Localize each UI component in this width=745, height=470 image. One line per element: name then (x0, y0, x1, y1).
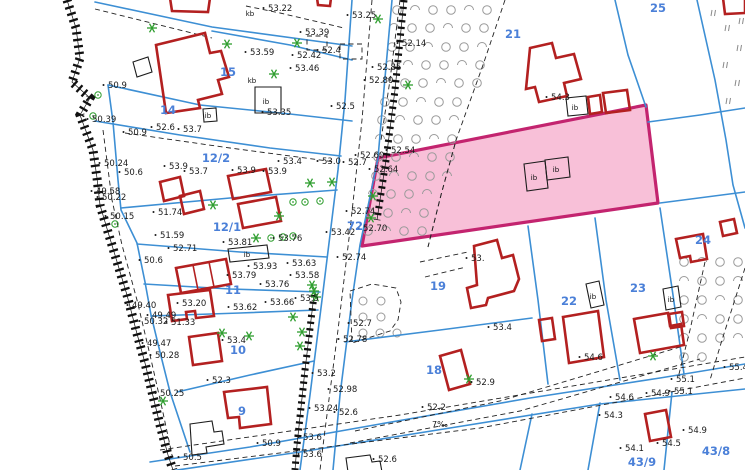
elevation-label: 52.2 (427, 403, 446, 413)
elevation-point (488, 326, 490, 328)
elevation-label: 51.74 (158, 208, 182, 218)
orchard-tree-icon (414, 116, 423, 125)
tree-circle-dot (304, 201, 306, 203)
elevation-label: 50.5 (183, 453, 202, 463)
parcel-number-label: 22 (561, 294, 577, 308)
elevation-point (317, 49, 319, 51)
elevation-label: 52.85 (377, 63, 401, 73)
elevation-label: 52.71 (173, 244, 197, 254)
elevation-point (151, 126, 153, 128)
elevation-label: 50.22 (102, 193, 126, 203)
elevation-label: 52.70 (363, 224, 387, 234)
elevation-label: 53.81 (228, 238, 252, 248)
elevation-label: 55.4 (729, 363, 745, 373)
elevation-point (207, 379, 209, 381)
orchard-tree-icon (429, 6, 438, 15)
orchard-tree-icon-arc (478, 43, 487, 48)
elevation-label: 54.1 (625, 444, 644, 454)
meadow-tick-icon (735, 80, 736, 86)
elevation-label: 50.9 (108, 81, 127, 91)
elevation-label: 55.1 (676, 375, 695, 385)
parcel-boundary (648, 108, 745, 122)
elevation-label: 53.20 (182, 299, 206, 309)
elevation-point (119, 171, 121, 173)
elevation-label: 52.3 (212, 376, 231, 386)
parcel-number-label: 12/2 (202, 151, 230, 165)
orchard-tree-icon (698, 334, 707, 343)
elevation-point (155, 392, 157, 394)
orchard-tree-icon-arc (458, 61, 467, 66)
elevation-point (346, 210, 348, 212)
orchard-tree-icon (377, 297, 385, 305)
elevation-label: 53.5 (300, 294, 319, 304)
orchard-tree-icon (442, 43, 451, 52)
elevation-point (228, 306, 230, 308)
elevation-label: 52.74 (342, 253, 366, 263)
elevation-label: 53.9 (268, 167, 287, 177)
orchard-tree-icon (447, 6, 456, 15)
orchard-tree-icon (426, 24, 435, 33)
elevation-point (331, 105, 333, 107)
orchard-tree-icon (716, 334, 725, 343)
outbuilding-outline (190, 421, 224, 455)
orchard-tree-icon (412, 135, 421, 144)
elevation-point (155, 234, 157, 236)
elevation-label: 53.66 (270, 298, 294, 308)
elevation-label: 53.4 (493, 323, 512, 333)
orchard-tree-icon (716, 277, 725, 286)
elevation-point (599, 414, 601, 416)
elevation-point (326, 231, 328, 233)
elevation-point (166, 321, 168, 323)
elevation-label: 54.6 (615, 393, 634, 403)
meadow-tick-icon (741, 45, 742, 51)
elevation-point (724, 366, 726, 368)
orchard-tree-icon-arc (417, 98, 426, 103)
elevation-point (97, 196, 99, 198)
elevation-point (263, 7, 265, 9)
parcel-boundary (528, 226, 548, 384)
tree-circle-dot (319, 200, 321, 202)
elevation-point (334, 411, 336, 413)
elevation-point (397, 42, 399, 44)
elevation-point (105, 215, 107, 217)
parcel-boundary (588, 403, 600, 470)
elevation-label: 52.64 (374, 165, 398, 175)
building-tag-label: ib (244, 251, 251, 259)
elevation-point (99, 162, 101, 164)
orchard-tree-icon (716, 315, 725, 324)
parcel-number-label: 15 (220, 65, 236, 79)
building-outline (238, 197, 281, 228)
building-tag-label: kb (246, 10, 255, 18)
parcel-boundary (108, 85, 352, 121)
orchard-tree-icon (399, 98, 408, 107)
elevation-point (232, 169, 234, 171)
elevation-label: 52.98 (333, 385, 357, 395)
elevation-point (87, 118, 89, 120)
elevation-label: 50.28 (155, 351, 179, 361)
elevation-label: 53.35 (267, 108, 291, 118)
elevation-point (177, 302, 179, 304)
cadastral-map-canvas[interactable]: 50.950.3950.952.653.753.5953.3553.2253.2… (0, 0, 745, 470)
building-outline (189, 333, 222, 365)
elevation-point (178, 456, 180, 458)
orchard-tree-icon-arc (465, 6, 474, 10)
elevation-label: 53.7 (183, 125, 202, 135)
elevation-label: 54.6 (584, 353, 603, 363)
elevation-point (263, 170, 265, 172)
elevation-label: 53.58 (295, 271, 319, 281)
elevation-point (337, 256, 339, 258)
parcel-boundary (95, 2, 352, 46)
orchard-tree-icon-arc (444, 24, 453, 29)
meadow-tick-icon (727, 62, 728, 68)
building-tag-label: ib (531, 174, 538, 182)
elevation-label: 52.80 (369, 76, 393, 86)
orchard-tree-icon (462, 24, 471, 33)
orchard-tree-icon-arc (430, 135, 439, 140)
elevation-point (372, 66, 374, 68)
elevation-label: 53.7 (189, 167, 208, 177)
orchard-tree-icon (408, 24, 417, 33)
parcel-number-label: 12/1 (213, 220, 241, 234)
elevation-label: 53.59 (250, 48, 274, 58)
elevation-point (312, 372, 314, 374)
elevation-point (290, 67, 292, 69)
elevation-label: 53.22 (268, 4, 292, 14)
elevation-label: 50.39 (92, 115, 116, 125)
elevation-label: 52.5 (336, 102, 355, 112)
elevation-label: 53.63 (292, 259, 316, 269)
elevation-label: 53.62 (233, 303, 257, 313)
elevation-point (178, 128, 180, 130)
elevation-point (123, 131, 125, 133)
tree-circle-dot (114, 223, 116, 225)
meadow-tick-icon (739, 18, 740, 24)
elevation-label: 51.59 (160, 231, 184, 241)
elevation-point (184, 170, 186, 172)
elevation-point (91, 190, 93, 192)
elevation-label: 52.6 (378, 455, 397, 465)
orchard-tree-icon-arc (396, 116, 405, 121)
building-tag-label: ib (572, 104, 579, 112)
building-division-line (209, 262, 214, 287)
elevation-label: 54.3 (551, 93, 570, 103)
usage-boundary-dashed (103, 130, 172, 455)
elevation-label: 53.39 (305, 28, 329, 38)
orchard-tree-icon (734, 296, 743, 305)
orchard-tree-icon (422, 61, 431, 70)
elevation-point (328, 388, 330, 390)
elevation-point (309, 407, 311, 409)
meadow-tick-icon (739, 80, 740, 86)
meadow-tick-icon (723, 62, 724, 68)
elevation-point (227, 274, 229, 276)
elevation-point (343, 161, 345, 163)
elevation-label: 49.47 (147, 339, 171, 349)
elevation-label: 52.7 (348, 158, 367, 168)
orchard-tree-icon-arc (404, 61, 413, 66)
parcel-number-label: 19 (430, 279, 446, 293)
elevation-label: 52.7 (353, 319, 372, 329)
usage-boundary-dashed (355, 347, 680, 431)
parcel-number-label: 9 (238, 404, 246, 418)
orchard-tree-icon (734, 258, 743, 267)
elevation-point (245, 51, 247, 53)
elevation-point (273, 237, 275, 239)
building-outline (317, 0, 331, 6)
elevation-label: 54.3 (604, 411, 623, 421)
elevation-point (223, 241, 225, 243)
elevation-point (278, 160, 280, 162)
elevation-label: 50.9 (262, 439, 281, 449)
elevation-label: 52.9 (476, 378, 495, 388)
elevation-point (292, 54, 294, 56)
parcel-number-label: 11 (225, 283, 241, 297)
elevation-point (386, 149, 388, 151)
elevation-label: 52.74 (351, 207, 375, 217)
parcel-boundary (520, 414, 532, 470)
elevation-point (222, 339, 224, 341)
meadow-tick-icon (726, 98, 727, 104)
elevation-point (298, 453, 300, 455)
orchard-tree-icon (453, 98, 462, 107)
orchard-tree-icon-arc (698, 315, 707, 319)
orchard-tree-icon (435, 98, 444, 107)
orchard-tree-icon-arc (680, 277, 689, 282)
elevation-label: 53.0 (322, 157, 341, 167)
building-outline (156, 33, 229, 113)
elevation-point (260, 283, 262, 285)
elevation-point (355, 154, 357, 156)
elevation-point (295, 297, 297, 299)
elevation-label: 53.2 (317, 369, 336, 379)
elevation-label: 53.25 (352, 11, 376, 21)
building-outline (170, 0, 210, 12)
elevation-label: 52.42 (297, 51, 321, 61)
parcel-number-label: 24 (695, 233, 711, 247)
usage-boundary-dashed (246, 6, 344, 28)
elevation-label: 53.93 (253, 262, 277, 272)
elevation-label: 54.9 (651, 389, 670, 399)
elevation-point (153, 211, 155, 213)
elevation-label: 53.6 (303, 450, 322, 460)
elevation-point (257, 442, 259, 444)
parcel-number-label: 10 (230, 343, 246, 357)
orchard-tree-icon (455, 79, 464, 88)
orchard-tree-icon (376, 329, 384, 337)
elevation-label: 52.78 (343, 335, 367, 345)
elevation-point (338, 338, 340, 340)
orchard-tree-icon (440, 61, 449, 70)
usage-boundary-dashed (455, 0, 505, 143)
elevation-point (127, 304, 129, 306)
orchard-tree-icon (394, 135, 403, 144)
meadow-tick-icon (725, 25, 726, 31)
building-tag-label: kb (248, 77, 257, 85)
elevation-label: 49.40 (132, 301, 156, 311)
elevation-point (546, 96, 548, 98)
parcel-number-label: 25 (650, 1, 666, 15)
tree-circle-dot (292, 201, 294, 203)
building-tag-label: ib (263, 98, 270, 106)
elevation-point (369, 168, 371, 170)
elevation-point (139, 259, 141, 261)
parcel-number-label: 43/8 (702, 444, 730, 458)
parcel-number-label: 21 (505, 27, 521, 41)
elevation-point (139, 320, 141, 322)
building-tag-label: ib (553, 166, 560, 174)
building-tag-label: ib (668, 296, 675, 304)
meadow-tick-icon (711, 10, 712, 16)
elevation-point (298, 436, 300, 438)
usage-boundary-dashed (425, 267, 466, 277)
elevation-point (671, 378, 673, 380)
orchard-tree-icon (698, 353, 707, 362)
elevation-point (103, 84, 105, 86)
parcel-boundary (660, 192, 745, 203)
building-outline (723, 0, 745, 14)
elevation-label: 53.4 (283, 157, 302, 167)
elevation-point (265, 301, 267, 303)
elevation-label: 53.6 (303, 433, 322, 443)
elevation-point (348, 322, 350, 324)
elevation-point (683, 429, 685, 431)
elevation-point (610, 396, 612, 398)
elevation-label: 50.25 (160, 389, 184, 399)
elevation-label: 52.6 (156, 123, 175, 133)
elevation-point (164, 165, 166, 167)
road-grade-label: 7‰ (432, 420, 448, 429)
elevation-label: 50.6 (144, 256, 163, 266)
orchard-tree-icon (388, 43, 397, 52)
elevation-label: 54.9 (688, 426, 707, 436)
elevation-point (620, 447, 622, 449)
tree-circle-dot (270, 237, 272, 239)
parcel-number-label: 23 (630, 281, 646, 295)
orchard-tree-icon (480, 24, 489, 33)
highlighted-parcel-layer (362, 105, 658, 247)
elevation-label: 50.9 (128, 128, 147, 138)
elevation-point (579, 356, 581, 358)
elevation-point (364, 79, 366, 81)
elevation-point (248, 265, 250, 267)
elevation-label: 53.76 (278, 234, 302, 244)
elevation-point (300, 31, 302, 33)
elevation-point (317, 160, 319, 162)
elevation-point (168, 247, 170, 249)
elevation-point (147, 314, 149, 316)
elevation-point (466, 257, 468, 259)
orchard-tree-icon-arc (437, 79, 446, 84)
elevation-point (142, 342, 144, 344)
elevation-label: 53.76 (265, 280, 289, 290)
elevation-point (262, 111, 264, 113)
meadow-tick-icon (730, 98, 731, 104)
building-outline (467, 240, 519, 308)
elevation-label: 54.5 (662, 439, 681, 449)
elevation-label: 50.15 (110, 212, 134, 222)
elevation-label: 52.54 (391, 146, 415, 156)
parcel-number-label: 14 (160, 103, 176, 117)
building-tag-label: ib (205, 112, 212, 120)
meadow-tick-icon (743, 18, 744, 24)
meadow-tick-icon (737, 45, 738, 51)
elevation-label: 53.46 (295, 64, 319, 74)
building-outline (224, 387, 271, 428)
orchard-tree-icon-arc (716, 296, 725, 301)
elevation-label: 53.79 (232, 271, 256, 281)
elevation-point (150, 354, 152, 356)
elevation-label: 55.1 (674, 387, 693, 397)
elevation-label: 52.4 (322, 46, 341, 56)
orchard-tree-icon (716, 258, 725, 267)
building-outline (539, 318, 555, 341)
elevation-label: 52.6 (339, 408, 358, 418)
elevation-label: 52.14 (402, 39, 426, 49)
parcel-number-label: 43/9 (628, 455, 656, 469)
orchard-tree-icon (698, 296, 707, 305)
orchard-tree-icon (359, 297, 367, 305)
elevation-label: 51.33 (171, 318, 195, 328)
orchard-tree-icon (483, 6, 492, 15)
elevation-label: 53. (471, 254, 485, 264)
elevation-label: 53.9 (237, 166, 256, 176)
meadow-tick-icon (729, 25, 730, 31)
parcel-number-label: 72 (347, 219, 363, 233)
elevation-point (657, 442, 659, 444)
orchard-tree-icon (680, 296, 689, 305)
elevation-label: 50.6 (124, 168, 143, 178)
building-tag-label: ib (590, 293, 597, 301)
outbuilding-outline (346, 455, 382, 470)
orchard-tree-icon-arc (411, 6, 420, 10)
building-outline (440, 350, 470, 390)
orchard-tree-icon (460, 43, 469, 52)
orchard-tree-icon (377, 313, 385, 321)
elevation-point (373, 458, 375, 460)
orchard-tree-icon (734, 315, 743, 324)
orchard-tree-icon (698, 277, 707, 286)
usage-boundary-dashed (420, 252, 468, 262)
orchard-tree-icon (419, 79, 428, 88)
outbuilding-outline (133, 57, 152, 77)
elevation-point (422, 406, 424, 408)
parcel-number-label: 18 (426, 363, 442, 377)
building-outline (720, 219, 737, 236)
meadow-tick-icon (715, 10, 716, 16)
orchard-tree-icon-arc (450, 116, 459, 121)
elevation-point (287, 262, 289, 264)
elevation-point (290, 274, 292, 276)
elevation-point (471, 381, 473, 383)
cadastral-map-viewport[interactable]: 50.950.3950.952.653.753.5953.3553.2253.2… (0, 0, 745, 470)
orchard-tree-icon (432, 116, 441, 125)
building-outline (588, 95, 602, 114)
elevation-point (347, 14, 349, 16)
tree-circle-dot (97, 94, 99, 96)
orchard-tree-icon-arc (734, 334, 743, 339)
elevation-point (646, 392, 648, 394)
